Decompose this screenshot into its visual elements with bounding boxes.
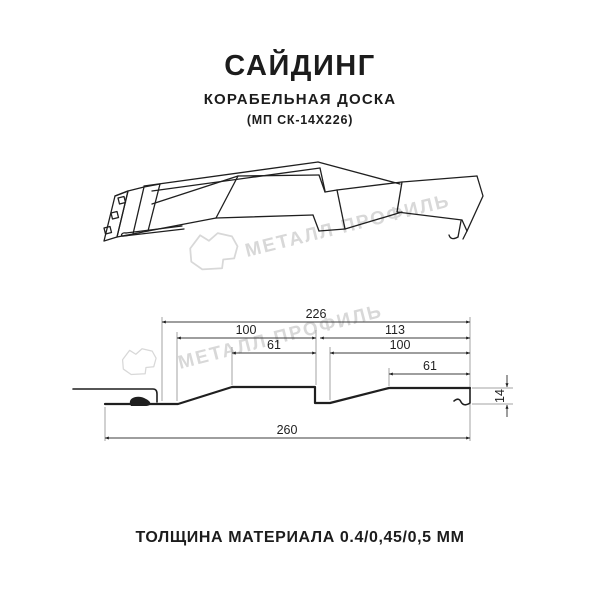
flange-hole bbox=[118, 197, 126, 205]
watermark-text: МЕТАЛЛ ПРОФИЛЬ bbox=[243, 191, 452, 262]
dim-label-panel2-module: 113 bbox=[385, 323, 405, 337]
dim-label-panel1-width: 100 bbox=[236, 323, 257, 337]
dim-label-panel2-flat: 61 bbox=[423, 359, 437, 373]
section-right-edge bbox=[454, 388, 470, 405]
technical-drawing-canvas: МЕТАЛЛ ПРОФИЛЬ МЕТАЛЛ ПРОФИЛЬ bbox=[0, 0, 600, 600]
flange-hole bbox=[104, 227, 112, 235]
flange-hole bbox=[111, 212, 119, 220]
dim-label-total-width: 260 bbox=[277, 423, 298, 437]
section-profile bbox=[105, 387, 470, 404]
thickness-note: ТОЛЩИНА МАТЕРИАЛА 0.4/0,45/0,5 ММ bbox=[0, 529, 600, 547]
watermark-upper: МЕТАЛЛ ПРОФИЛЬ bbox=[190, 191, 452, 270]
product-drawing-page: САЙДИНГ КОРАБЕЛЬНАЯ ДОСКА (МП СК-14Х226)… bbox=[0, 0, 600, 600]
dim-label-profile-height: 14 bbox=[493, 389, 507, 403]
dim-label-panel1-flat: 61 bbox=[267, 338, 281, 352]
metall-profil-logo-icon bbox=[123, 349, 157, 375]
dim-label-panel2-width: 100 bbox=[390, 338, 411, 352]
dim-label-module-width: 226 bbox=[306, 307, 327, 321]
metall-profil-logo-icon bbox=[190, 233, 237, 269]
